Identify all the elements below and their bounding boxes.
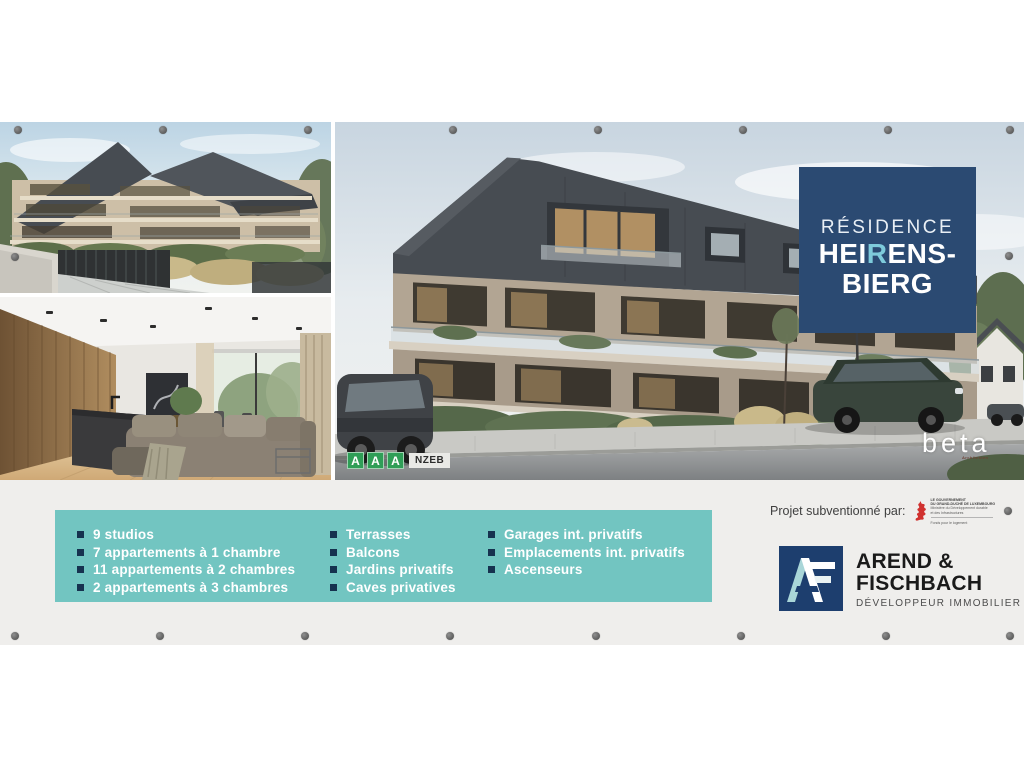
feature-text: 9 studios [93, 527, 154, 542]
grommet-icon [446, 632, 454, 640]
title-line2: HEIRENS- [819, 239, 957, 269]
title-line2-post: ENS- [888, 238, 957, 269]
bullet-square-icon [330, 549, 337, 556]
bottom-strip: 9 studios 7 appartements à 1 chambre 11 … [0, 480, 1024, 645]
grommet-icon [11, 253, 19, 261]
feature-text: 11 appartements à 2 chambres [93, 562, 295, 577]
bullet-square-icon [77, 531, 84, 538]
grommet-icon [1006, 126, 1014, 134]
feature-text: Balcons [346, 545, 400, 560]
grommet-icon [1004, 507, 1012, 515]
grommet-icon [156, 632, 164, 640]
features-column-units: 9 studios 7 appartements à 1 chambre 11 … [77, 526, 295, 596]
af-monogram-icon [779, 546, 843, 611]
bullet-square-icon [77, 584, 84, 591]
grommet-icon [739, 126, 747, 134]
grommet-icon [592, 632, 600, 640]
bullet-square-icon [488, 549, 495, 556]
exterior-garden-photo [0, 122, 331, 293]
grommet-icon [304, 126, 312, 134]
grommet-icon [159, 126, 167, 134]
grommet-icon [594, 126, 602, 134]
grommet-icon [884, 126, 892, 134]
feature-text: Jardins privatifs [346, 562, 454, 577]
bullet-square-icon [330, 531, 337, 538]
feature-text: Ascenseurs [504, 562, 583, 577]
bullet-square-icon [330, 566, 337, 573]
government-logo-text: LE GOUVERNEMENT DU GRAND-DUCHÉ DE LUXEMB… [931, 498, 996, 525]
banner-poster: RÉSIDENCE HEIRENS- BIERG A A A NZEB beta… [0, 0, 1024, 768]
feature-item: 9 studios [77, 526, 295, 544]
feature-text: Garages int. privatifs [504, 527, 643, 542]
title-card: RÉSIDENCE HEIRENS- BIERG [799, 167, 976, 333]
architect-logo-subtitle: Architekten [962, 455, 991, 460]
title-line2-pre: HEI [819, 238, 867, 269]
gov-tagline: Fonds pour le logement [931, 521, 996, 525]
grommet-icon [737, 632, 745, 640]
bullet-square-icon [77, 549, 84, 556]
feature-item: Emplacements int. privatifs [488, 544, 685, 562]
grommet-icon [301, 632, 309, 640]
interior-livingroom-photo [0, 297, 331, 480]
title-line3: BIERG [842, 269, 933, 299]
features-box: 9 studios 7 appartements à 1 chambre 11 … [55, 510, 712, 602]
luxembourg-government-logo: LE GOUVERNEMENT DU GRAND-DUCHÉ DE LUXEMB… [913, 498, 996, 525]
feature-item: 2 appartements à 3 chambres [77, 579, 295, 597]
feature-text: 2 appartements à 3 chambres [93, 580, 288, 595]
feature-item: Terrasses [330, 526, 456, 544]
developer-name-line2: FISCHBACH [856, 573, 1021, 595]
bullet-square-icon [77, 566, 84, 573]
nzeb-label: NZEB [409, 453, 450, 468]
grommet-icon [449, 126, 457, 134]
feature-text: 7 appartements à 1 chambre [93, 545, 281, 560]
residence-label: RÉSIDENCE [821, 217, 954, 239]
feature-text: Terrasses [346, 527, 411, 542]
feature-text: Caves privatives [346, 580, 456, 595]
architect-logo: beta Architekten [922, 430, 991, 460]
architect-logo-name: beta [922, 430, 991, 456]
grommet-icon [882, 632, 890, 640]
features-column-parking: Garages int. privatifs Emplacements int.… [488, 526, 685, 579]
gov-line: Ministère du Développement durable [931, 506, 996, 510]
energy-class-a-icon: A [367, 452, 384, 469]
grommet-icon [14, 126, 22, 134]
energy-class-badge: A A A NZEB [347, 452, 450, 469]
interior-livingroom-scene [0, 297, 331, 480]
feature-item: 11 appartements à 2 chambres [77, 561, 295, 579]
luxembourg-government-lion-icon [913, 500, 928, 522]
bullet-square-icon [488, 531, 495, 538]
feature-item: Caves privatives [330, 579, 456, 597]
feature-item: Garages int. privatifs [488, 526, 685, 544]
subsidy-row: Projet subventionné par: LE GOUVERNEMENT… [770, 498, 995, 525]
feature-item: Jardins privatifs [330, 561, 456, 579]
feature-item: 7 appartements à 1 chambre [77, 544, 295, 562]
developer-logo: AREND & FISCHBACH DÉVELOPPEUR IMMOBILIER [779, 546, 1021, 611]
exterior-garden-scene [0, 122, 331, 293]
energy-class-a-icon: A [347, 452, 364, 469]
gov-divider [931, 517, 993, 518]
energy-class-a-icon: A [387, 452, 404, 469]
developer-name-line1: AREND & [856, 551, 1021, 573]
title-accent-letter: R [867, 238, 888, 269]
grommet-icon [1005, 252, 1013, 260]
developer-subtitle: DÉVELOPPEUR IMMOBILIER [856, 598, 1021, 609]
grommet-icon [11, 632, 19, 640]
developer-logo-text: AREND & FISCHBACH DÉVELOPPEUR IMMOBILIER [856, 546, 1021, 609]
feature-item: Ascenseurs [488, 561, 685, 579]
feature-text: Emplacements int. privatifs [504, 545, 685, 560]
gov-line: et des Infrastructures [931, 511, 996, 515]
features-column-outdoor: Terrasses Balcons Jardins privatifs Cave… [330, 526, 456, 596]
grommet-icon [1006, 632, 1014, 640]
subsidy-label: Projet subventionné par: [770, 504, 906, 518]
feature-item: Balcons [330, 544, 456, 562]
bullet-square-icon [488, 566, 495, 573]
bullet-square-icon [330, 584, 337, 591]
